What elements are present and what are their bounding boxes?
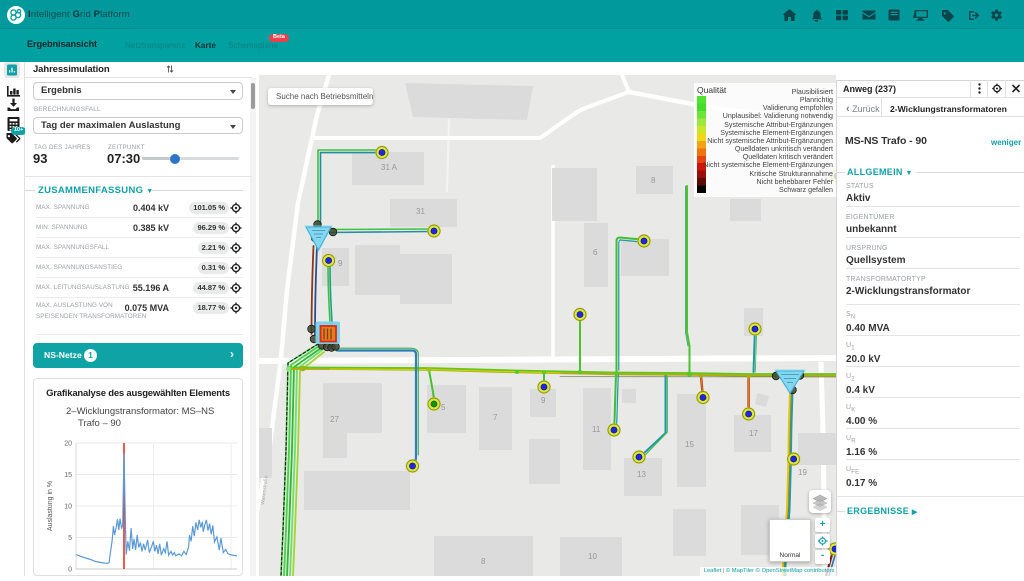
svg-text:11: 11 [592, 425, 601, 434]
svg-text:5: 5 [441, 403, 446, 412]
svg-text:9: 9 [338, 259, 343, 268]
svg-text:7: 7 [493, 413, 498, 422]
svg-text:Auslastung in %: Auslastung in % [47, 481, 54, 531]
svg-text:10: 10 [588, 552, 597, 561]
svg-text:13: 13 [637, 470, 646, 479]
svg-text:27: 27 [330, 415, 339, 424]
svg-text:15: 15 [64, 472, 72, 479]
svg-text:5: 5 [68, 535, 72, 542]
svg-text:10: 10 [64, 504, 72, 511]
svg-text:31 A: 31 A [381, 163, 398, 172]
svg-text:6: 6 [593, 248, 598, 257]
svg-text:8: 8 [651, 176, 656, 185]
svg-text:8: 8 [481, 557, 486, 566]
svg-text:19: 19 [798, 468, 807, 477]
svg-text:0: 0 [68, 567, 72, 574]
svg-text:17: 17 [749, 429, 758, 438]
svg-text:31: 31 [416, 207, 425, 216]
svg-text:15: 15 [685, 440, 694, 449]
svg-text:9: 9 [541, 396, 546, 405]
svg-text:20: 20 [64, 441, 72, 448]
